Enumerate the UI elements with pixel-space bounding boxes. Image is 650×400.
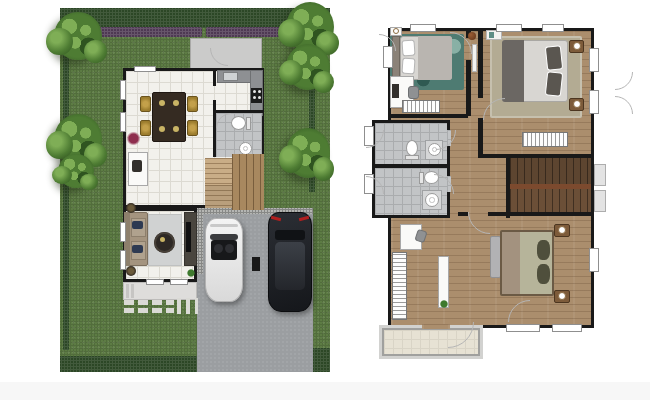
second-floor-plan	[356, 14, 614, 376]
stepping-stones-row	[124, 308, 174, 313]
stepping-stones-vertical	[177, 298, 198, 314]
tree	[58, 154, 94, 188]
driveway-gravel-edge-left	[197, 214, 203, 274]
bedroom-front-bottom-wall	[388, 114, 468, 118]
bathroom-1f-wall-left	[213, 110, 216, 157]
suv-roof	[275, 242, 305, 290]
window	[120, 250, 126, 270]
bathroom-divider-wall	[372, 164, 450, 168]
burner	[258, 90, 261, 93]
burner	[258, 96, 261, 99]
bottom-hedge	[60, 356, 200, 372]
terrace-step	[126, 284, 129, 298]
staircase-2f-lower	[510, 189, 591, 212]
bedroom-front-right-wall	[466, 60, 471, 116]
window	[589, 248, 599, 272]
window	[506, 324, 540, 332]
window	[134, 66, 156, 72]
master-wardrobe	[522, 132, 568, 147]
bed-blanket	[418, 36, 452, 80]
rear-bedroom-top-wall-left	[458, 212, 468, 216]
dining-table	[152, 92, 186, 142]
dining-chair	[140, 120, 151, 136]
kitchen-partition-wall-upper	[213, 68, 216, 86]
side-drum-table	[126, 203, 136, 213]
bathroom-sink	[425, 193, 439, 207]
toilet-tank	[246, 117, 251, 130]
left-hedge-strip	[63, 54, 69, 350]
lamp	[573, 42, 581, 50]
window	[170, 279, 188, 285]
desk-chair	[408, 86, 419, 99]
red-plant	[126, 132, 141, 145]
coffee-table	[154, 232, 175, 253]
staircase-1f-treads-upper	[205, 158, 232, 185]
terrace-step	[131, 284, 134, 298]
desk-monitor	[392, 84, 399, 98]
dining-plate	[173, 100, 179, 106]
burner	[253, 90, 256, 93]
dining-plate	[159, 126, 165, 132]
coffee-table-dish	[160, 237, 165, 242]
first-floor-plan	[60, 8, 330, 380]
bathroom-1f-wall-top	[213, 110, 264, 113]
pillow	[545, 45, 563, 71]
staircase-1f-planks	[232, 154, 264, 210]
window	[589, 48, 599, 72]
window	[552, 324, 582, 332]
tv-screen	[186, 222, 191, 252]
window	[496, 24, 522, 32]
window	[120, 80, 126, 100]
staircase-1f-treads-lower	[205, 185, 232, 208]
dining-chair	[187, 120, 198, 136]
pillow	[401, 58, 415, 75]
car-seat	[225, 244, 234, 253]
ground-shadow-band	[0, 382, 650, 400]
dining-plate	[159, 100, 165, 106]
master-bed-throw	[502, 40, 524, 102]
tree	[286, 128, 330, 178]
tree	[54, 12, 102, 60]
dining-chair	[187, 96, 198, 112]
potted-plant	[440, 300, 448, 308]
tree	[286, 44, 330, 90]
front-bedroom-wardrobe	[402, 100, 440, 113]
hall-wardrobe	[392, 252, 407, 320]
rear-bedroom-top-wall-right	[488, 212, 594, 216]
toilet	[231, 116, 246, 130]
window	[589, 90, 599, 114]
sofa-pillow	[132, 221, 143, 229]
side-drum-table	[126, 266, 136, 276]
hall-shelf	[472, 44, 477, 72]
cabinet-decor	[489, 32, 494, 38]
pillow	[545, 71, 563, 97]
sofa-pillow	[132, 245, 143, 253]
window-swing-arc	[597, 96, 633, 132]
stepping-stones-row	[124, 300, 174, 305]
window	[120, 112, 126, 132]
dining-chair	[140, 96, 151, 112]
central-spine-wall-lower	[478, 118, 483, 158]
basketball	[468, 32, 476, 40]
window-light	[594, 164, 606, 186]
window	[410, 24, 436, 32]
car-trunk-line	[210, 224, 238, 227]
lamp	[573, 100, 581, 108]
lamp	[393, 28, 399, 34]
lamp	[558, 292, 566, 300]
floor-plan-illustration	[0, 0, 650, 400]
burner	[253, 96, 256, 99]
lamp	[558, 226, 566, 234]
console-decor	[132, 160, 142, 172]
potted-plant	[187, 269, 195, 277]
window-swing-arc	[597, 54, 633, 90]
carport-wall-stub-lower	[252, 257, 260, 271]
window	[542, 24, 564, 32]
window-light	[594, 190, 606, 212]
rear-bed-duvet	[502, 232, 520, 294]
window	[146, 279, 164, 285]
central-spine-wall-upper	[478, 28, 483, 98]
bottom-right-hedge	[313, 348, 330, 372]
pillow	[537, 264, 550, 284]
car-seat	[214, 244, 223, 253]
dining-plate	[173, 126, 179, 132]
staircase-2f-upper	[510, 158, 591, 184]
balcony-door-gap	[422, 324, 450, 329]
white-convertible-car	[205, 218, 243, 302]
kitchen-sink	[223, 72, 238, 81]
pillow	[401, 40, 415, 57]
suv-rear-window	[275, 230, 305, 240]
pillow	[537, 240, 550, 260]
toilet	[406, 140, 418, 156]
window	[120, 222, 126, 242]
window-swing-arc	[348, 112, 384, 148]
